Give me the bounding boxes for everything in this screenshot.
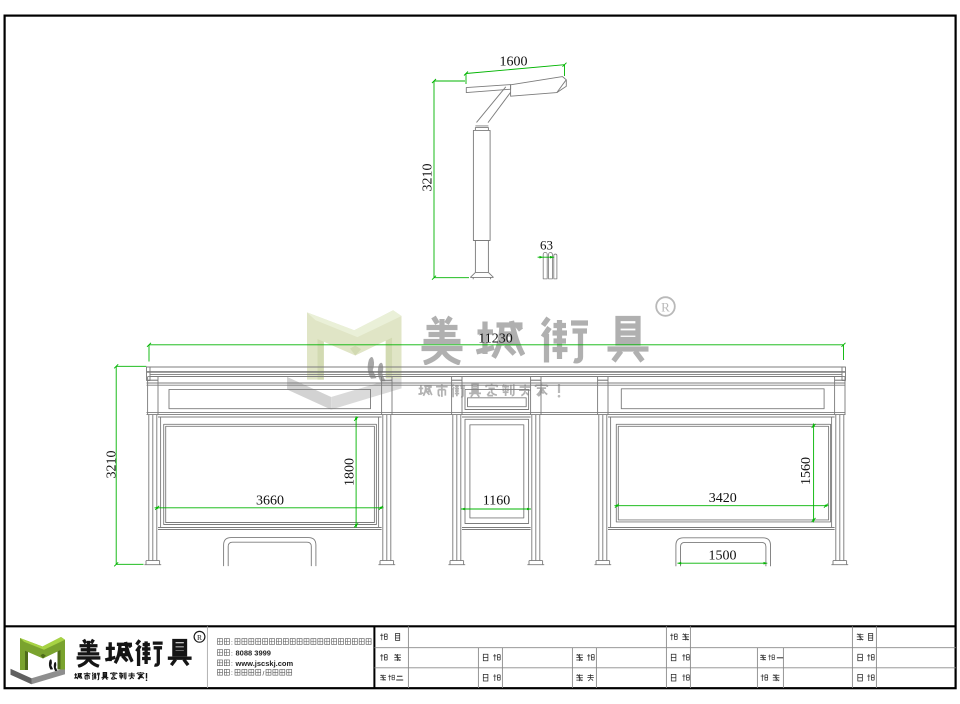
svg-text:/: / xyxy=(263,670,265,677)
svg-text:R: R xyxy=(197,633,202,642)
svg-text:1600: 1600 xyxy=(500,55,528,70)
svg-text:www.jscskj.com: www.jscskj.com xyxy=(235,659,294,668)
svg-text:1800: 1800 xyxy=(343,458,358,486)
svg-text:63: 63 xyxy=(540,238,553,253)
svg-text:1160: 1160 xyxy=(483,494,510,509)
svg-text:3660: 3660 xyxy=(256,494,284,509)
svg-text:3210: 3210 xyxy=(105,451,120,479)
svg-text::: : xyxy=(231,670,233,677)
svg-text:3210: 3210 xyxy=(421,164,436,192)
svg-text:1500: 1500 xyxy=(709,549,737,564)
svg-text:8088 3999: 8088 3999 xyxy=(236,649,271,658)
svg-text::: : xyxy=(231,639,233,646)
svg-text:R: R xyxy=(661,300,670,315)
svg-text::: : xyxy=(231,650,233,657)
svg-text::: : xyxy=(231,661,233,668)
svg-text:1560: 1560 xyxy=(799,457,814,485)
svg-text:11230: 11230 xyxy=(478,332,512,347)
svg-text:3420: 3420 xyxy=(709,491,737,506)
